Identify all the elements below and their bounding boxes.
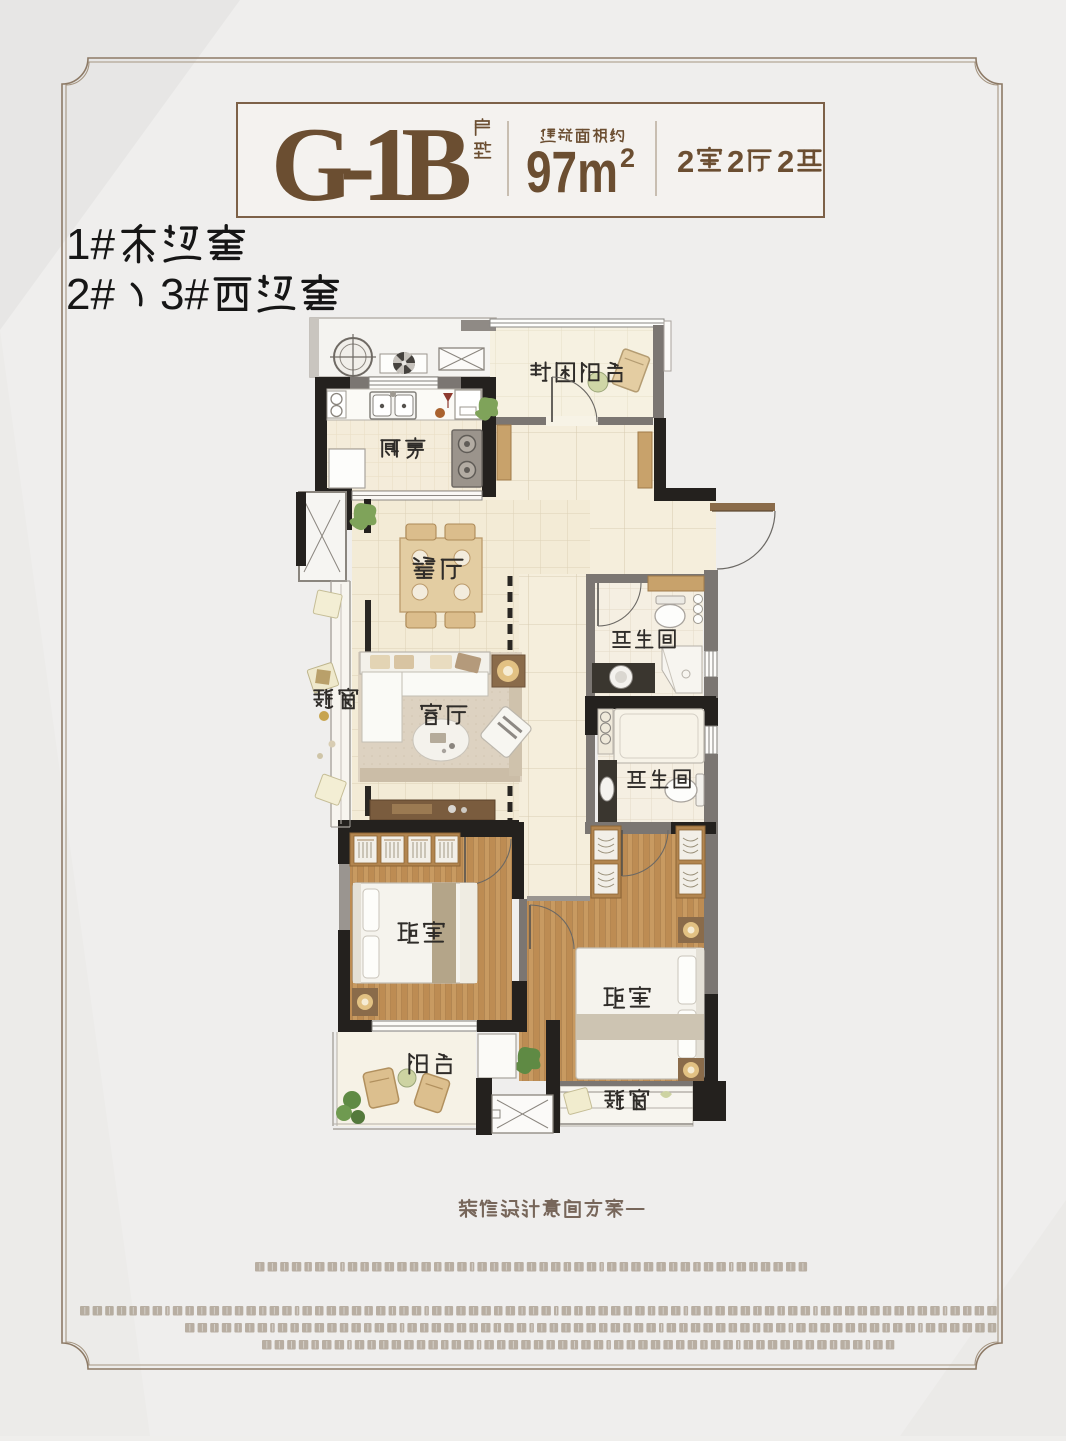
svg-text:2: 2 [777, 144, 794, 179]
svg-text:2: 2 [727, 144, 744, 179]
svg-text:2#: 2# [66, 270, 115, 319]
svg-text:G-1B: G-1B [271, 106, 472, 223]
svg-text:1#: 1# [66, 220, 115, 269]
svg-text:2: 2 [677, 144, 694, 179]
svg-text:3#: 3# [160, 270, 209, 319]
svg-text:2: 2 [620, 143, 635, 173]
svg-text:97m: 97m [526, 140, 618, 205]
